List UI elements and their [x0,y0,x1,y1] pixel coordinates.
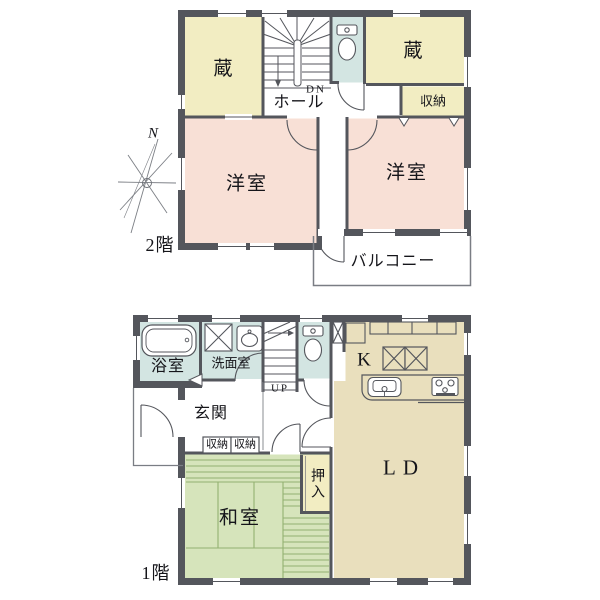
stove-icon [432,378,458,396]
room-label-bathroom: 浴室 [151,359,185,375]
room-label-tatami: 和室 [219,509,261,528]
first-floor-label: 1階 [142,564,171,582]
floor-plan-page: 蔵 蔵 DN ホール 収納 洋室 洋室 バルコニー 2階 N 浴室 洗面室 UP… [0,0,600,600]
second-floor-plan [178,10,471,286]
room-label-kura-left: 蔵 [213,60,234,79]
kitchen-sink-icon [368,378,401,397]
room-label-bedroom-right: 洋室 [386,164,428,183]
floor-plan-graphics [0,0,600,600]
fridge-icon [346,323,365,343]
bathtub-icon [142,325,196,356]
vanity-sink-icon [237,326,262,351]
compass-north-label: N [148,127,158,142]
second-floor-label: 2階 [146,236,175,254]
upper-counter-icon [370,322,456,334]
room-label-washroom: 洗面室 [211,357,250,370]
room-label-oshiire: 押入 [309,468,323,500]
toilet-2f-icon [337,25,357,60]
shoe-closet-label-2: 収納 [234,440,256,451]
room-label-hall: ホール [273,95,324,111]
room-label-balcony: バルコニー [351,254,436,270]
room-label-kura-right: 蔵 [403,42,424,61]
tall-cabinet-icon [333,322,343,343]
first-floor-plan [133,315,471,585]
washer-icon [205,324,232,351]
shoe-closet-label-1: 収納 [206,440,228,451]
room-label-living-dining: LD [383,458,425,479]
kitchen-cabinet-x-icon [383,347,427,370]
bathroom-bottom-wall [133,381,202,388]
room-label-entrance: 玄関 [194,406,228,422]
toilet-1f-icon [303,326,323,361]
room-label-bedroom-left: 洋室 [226,175,268,194]
stairs-up-label: UP [271,384,289,395]
compass-icon [118,139,176,233]
room-label-closet-2f: 収納 [420,95,446,108]
room-label-kitchen: K [357,351,371,370]
